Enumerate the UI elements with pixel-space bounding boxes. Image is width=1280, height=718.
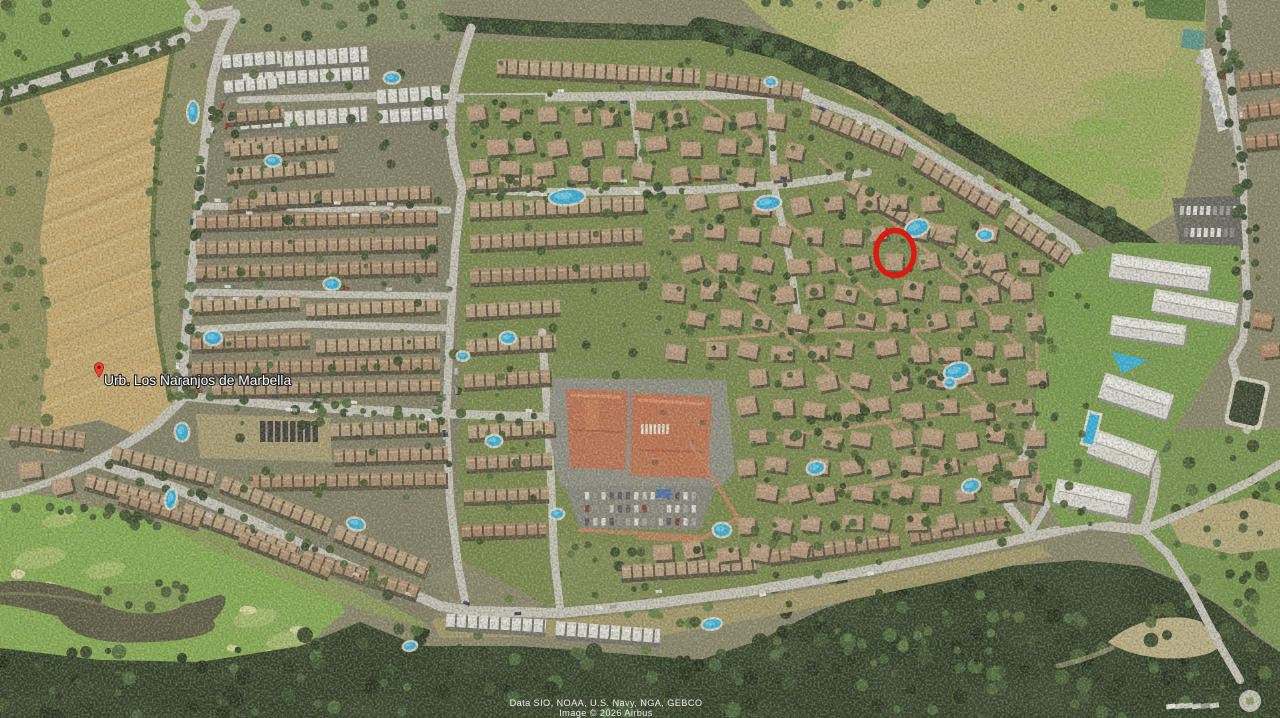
svg-text:Image © 2026 Airbus: Image © 2026 Airbus	[559, 708, 653, 718]
svg-text:Urb. Los Naranjos de Marbella: Urb. Los Naranjos de Marbella	[104, 373, 291, 388]
svg-text:Data SIO, NOAA, U.S. Navy, NGA: Data SIO, NOAA, U.S. Navy, NGA, GEBCO	[510, 698, 703, 708]
